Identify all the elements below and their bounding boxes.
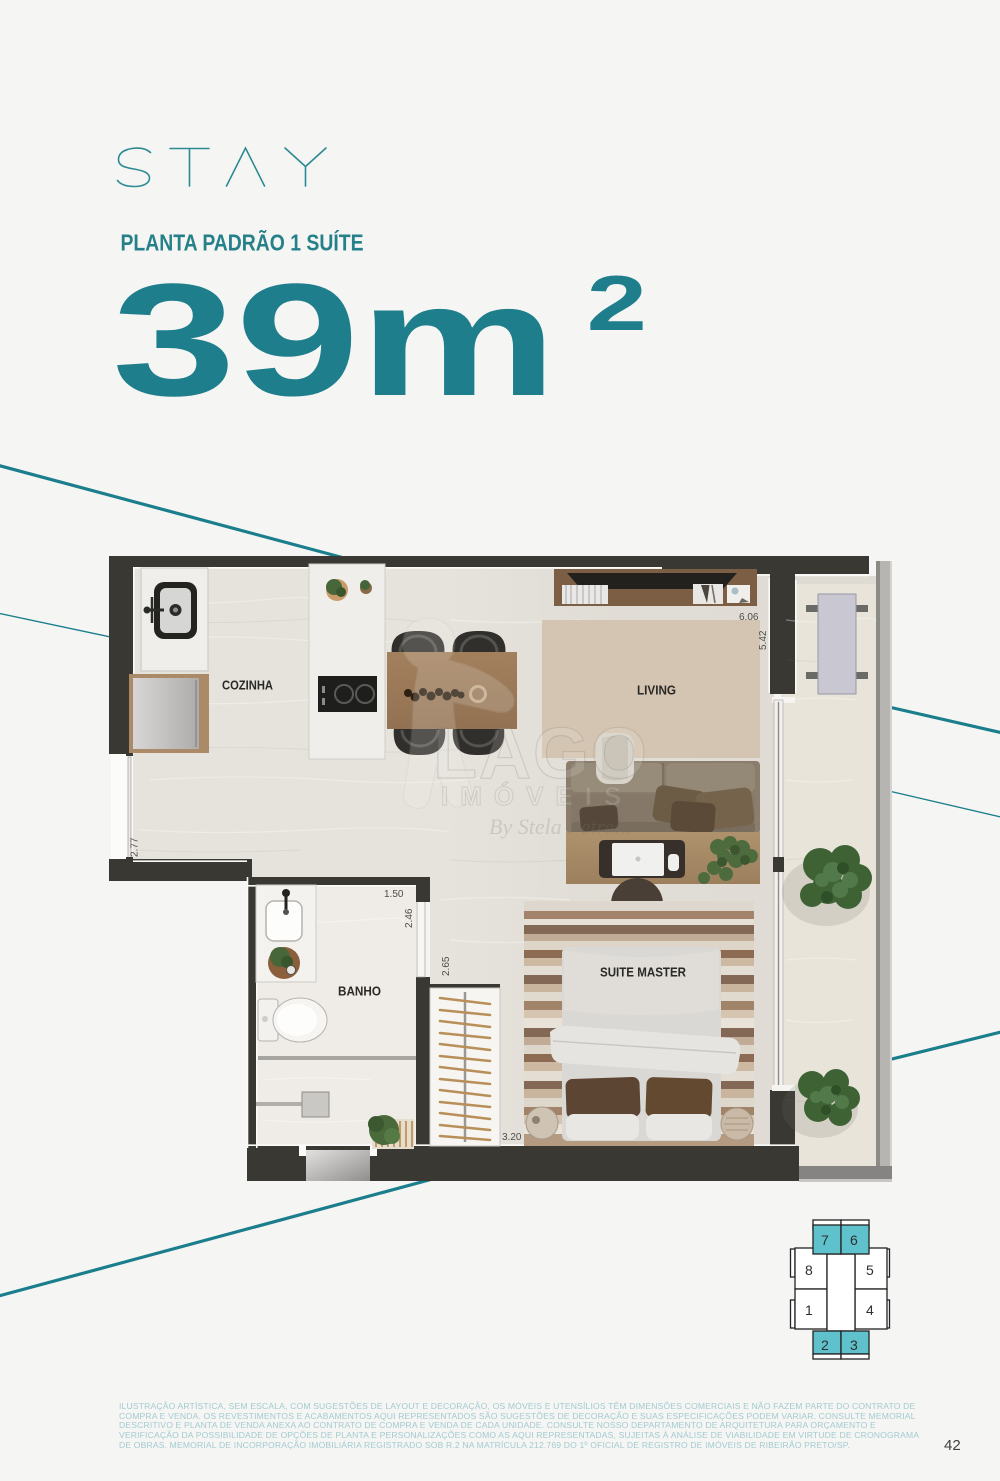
svg-text:39m: 39m [112, 251, 557, 429]
svg-text:2: 2 [587, 261, 647, 348]
svg-text:2.46: 2.46 [404, 908, 415, 928]
svg-text:5: 5 [866, 1262, 874, 1278]
svg-text:3.20: 3.20 [502, 1132, 522, 1143]
svg-text:IMÓVEIS: IMÓVEIS [441, 781, 633, 811]
svg-text:1: 1 [805, 1302, 813, 1318]
svg-text:7: 7 [821, 1232, 829, 1248]
svg-text:8: 8 [805, 1262, 813, 1278]
svg-text:2.65: 2.65 [441, 956, 452, 976]
svg-text:2.77: 2.77 [130, 837, 141, 857]
svg-text:By Stela Petrelli: By Stela Petrelli [489, 814, 632, 839]
svg-text:BANHO: BANHO [338, 985, 381, 999]
svg-text:6.06: 6.06 [739, 612, 759, 623]
svg-text:4: 4 [866, 1302, 874, 1318]
svg-text:6: 6 [850, 1232, 858, 1248]
svg-text:3: 3 [850, 1337, 858, 1353]
svg-text:2: 2 [821, 1337, 829, 1353]
svg-text:SUITE MASTER: SUITE MASTER [600, 966, 686, 980]
svg-text:LIVING: LIVING [637, 684, 676, 698]
svg-text:1.50: 1.50 [384, 889, 404, 900]
svg-text:COZINHA: COZINHA [222, 679, 273, 693]
svg-text:5.42: 5.42 [758, 630, 769, 650]
